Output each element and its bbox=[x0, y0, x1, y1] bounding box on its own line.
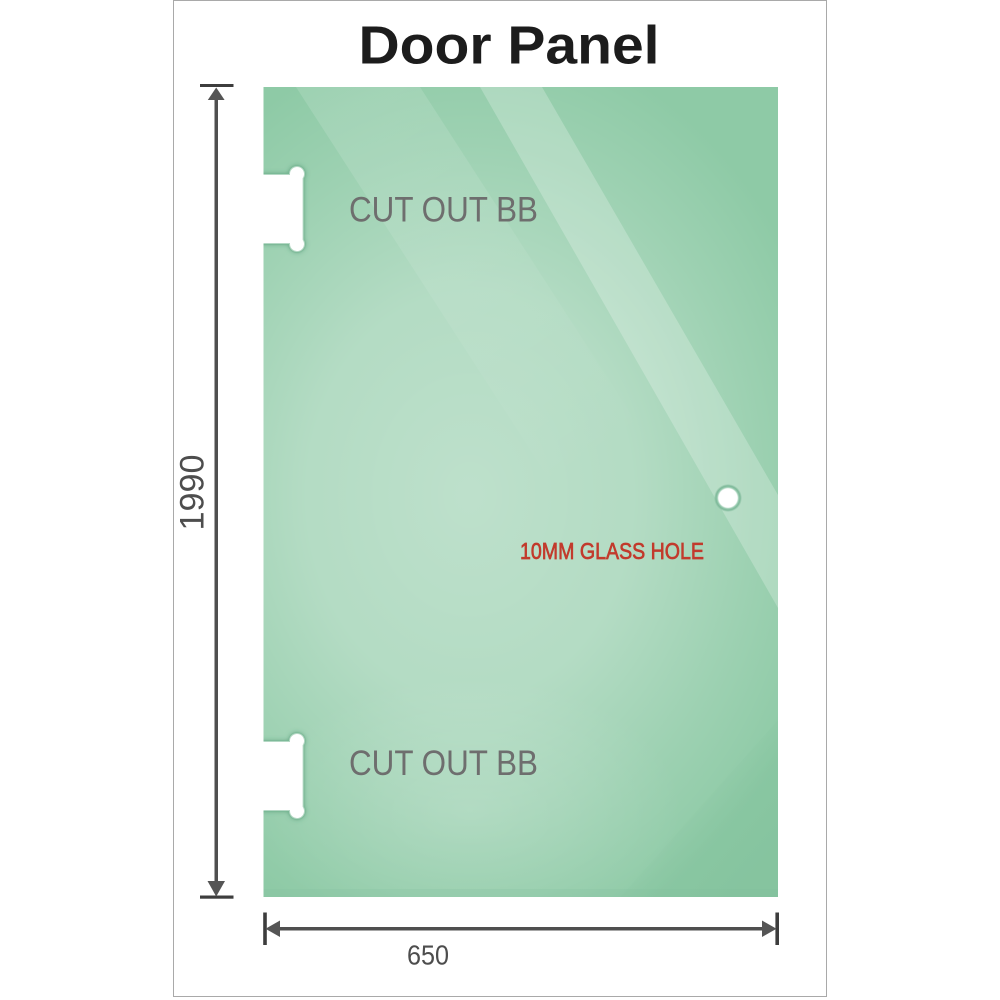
svg-text:CUT OUT BB: CUT OUT BB bbox=[349, 744, 538, 783]
svg-text:Door Panel: Door Panel bbox=[359, 16, 660, 76]
svg-text:1990: 1990 bbox=[174, 455, 212, 531]
svg-text:650: 650 bbox=[407, 940, 449, 971]
svg-text:CUT OUT BB: CUT OUT BB bbox=[349, 191, 538, 230]
svg-text:10MM GLASS HOLE: 10MM GLASS HOLE bbox=[520, 538, 704, 564]
